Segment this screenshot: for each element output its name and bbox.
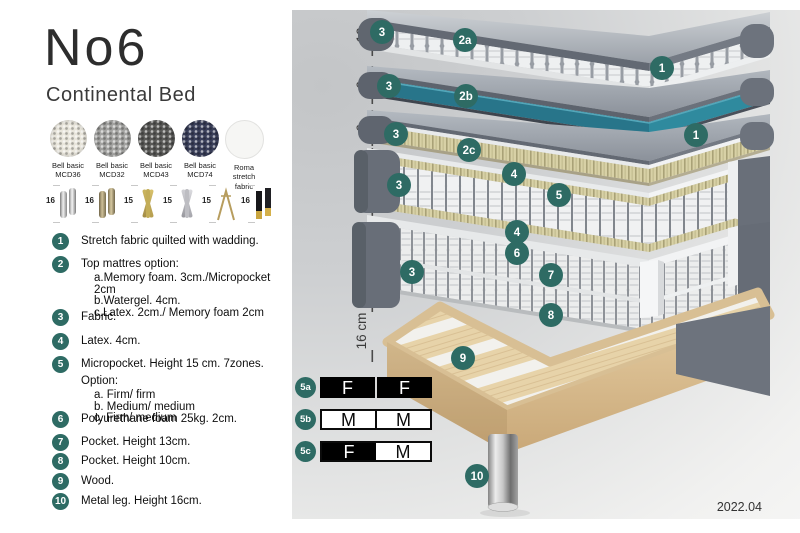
legend-number-badge: 6 [52, 411, 69, 428]
legend-text: Stretch fabric quilted with wadding. [81, 233, 259, 250]
callout-3-latex: 3 [384, 122, 408, 146]
svg-text:3: 3 [379, 27, 385, 39]
callout-4-bottom: 4 [505, 220, 529, 244]
legend-text: Fabric. [81, 309, 116, 326]
firmness-cell: M [375, 411, 430, 428]
legend-item-6: 6 Polyurethane foam 25kg. 2cm. [52, 411, 290, 428]
infographic-page: No6 Continental Bed Bell basicMCD36 Bell… [0, 0, 800, 533]
svg-text:5: 5 [556, 190, 563, 202]
callout-4-top: 4 [502, 162, 526, 186]
legend-item-7: 7 Pocket. Height 13cm. [52, 434, 290, 451]
legend-number-badge: 7 [52, 434, 69, 451]
wood-base [387, 292, 770, 517]
svg-text:1: 1 [659, 63, 666, 75]
callout-2b: 2b [454, 84, 478, 108]
legend-item-9: 9 Wood. [52, 473, 290, 490]
svg-text:2a: 2a [459, 35, 472, 47]
legend-panel: No6 Continental Bed Bell basicMCD36 Bell… [0, 0, 292, 533]
callout-3-watergel: 3 [377, 74, 401, 98]
svg-text:3: 3 [396, 180, 402, 192]
firmness-cell: F [322, 443, 376, 460]
callout-7: 7 [539, 263, 563, 287]
firmness-bar: M M [320, 409, 432, 430]
diagram-panel: 10 6 6 23 cm 27 cm 16 cm [292, 10, 800, 519]
callout-10: 10 [465, 464, 489, 488]
firmness-cell: F [320, 377, 375, 398]
legend-number-badge: 4 [52, 333, 69, 350]
firmness-bar: F F [320, 377, 432, 398]
legend-text: Pocket. Height 13cm. [81, 434, 190, 451]
svg-text:4: 4 [514, 227, 521, 239]
legend-number-badge: 3 [52, 309, 69, 326]
firmness-row-5b: 5b M M [295, 409, 432, 430]
firmness-bar: F M [320, 441, 432, 462]
svg-text:9: 9 [460, 353, 466, 365]
legend-text: Wood. [81, 473, 114, 490]
legend-item-1: 1 Stretch fabric quilted with wadding. [52, 233, 290, 250]
firmness-row-5a: 5a F F [295, 377, 432, 398]
version-label: 2022.04 [717, 500, 762, 514]
legend-list: 1 Stretch fabric quilted with wadding. 2… [0, 0, 292, 533]
callout-2c: 2c [457, 138, 481, 162]
callout-6: 6 [505, 241, 529, 265]
svg-text:3: 3 [409, 267, 415, 279]
callout-3-23cm: 3 [387, 173, 411, 197]
svg-text:4: 4 [511, 169, 518, 181]
firmness-row-5c: 5c F M [295, 441, 432, 462]
svg-text:7: 7 [548, 270, 554, 282]
firmness-badge: 5c [295, 441, 316, 462]
svg-text:2c: 2c [463, 145, 476, 157]
callout-2a: 2a [453, 28, 477, 52]
legend-item-8: 8 Pocket. Height 10cm. [52, 453, 290, 470]
legend-text: Pocket. Height 10cm. [81, 453, 190, 470]
legend-number-badge: 2 [52, 256, 69, 273]
firmness-cell: M [322, 411, 375, 428]
firmness-table: 5a F F 5b M M 5c F M [295, 377, 432, 473]
svg-text:6: 6 [514, 248, 520, 260]
legend-text: Latex. 4cm. [81, 333, 140, 350]
firmness-badge: 5a [295, 377, 316, 398]
svg-text:3: 3 [386, 81, 392, 93]
legend-number-badge: 5 [52, 356, 69, 373]
legend-number-badge: 8 [52, 453, 69, 470]
svg-text:10: 10 [471, 471, 484, 483]
callout-1-top: 1 [650, 56, 674, 80]
legend-text: Polyurethane foam 25kg. 2cm. [81, 411, 237, 428]
svg-text:3: 3 [393, 129, 399, 141]
legend-text: Metal leg. Height 16cm. [81, 493, 202, 510]
callout-3-27cm: 3 [400, 260, 424, 284]
front-metal-leg [488, 434, 518, 508]
firmness-cell: F [375, 377, 432, 398]
legend-number-badge: 1 [52, 233, 69, 250]
callout-8: 8 [539, 303, 563, 327]
dimension-label: 16 cm [354, 313, 369, 350]
legend-item-3: 3 Fabric. [52, 309, 290, 326]
legend-number-badge: 10 [52, 493, 69, 510]
callout-5: 5 [547, 183, 571, 207]
legend-item-4: 4 Latex. 4cm. [52, 333, 290, 350]
firmness-cell: M [376, 443, 430, 460]
svg-text:2b: 2b [459, 91, 472, 103]
callout-1-mid: 1 [684, 123, 708, 147]
legend-item-10: 10 Metal leg. Height 16cm. [52, 493, 290, 510]
legend-number-badge: 9 [52, 473, 69, 490]
svg-text:1: 1 [693, 130, 700, 142]
callout-3-topper: 3 [370, 20, 394, 44]
callout-9: 9 [451, 346, 475, 370]
svg-text:8: 8 [548, 310, 555, 322]
firmness-badge: 5b [295, 409, 316, 430]
